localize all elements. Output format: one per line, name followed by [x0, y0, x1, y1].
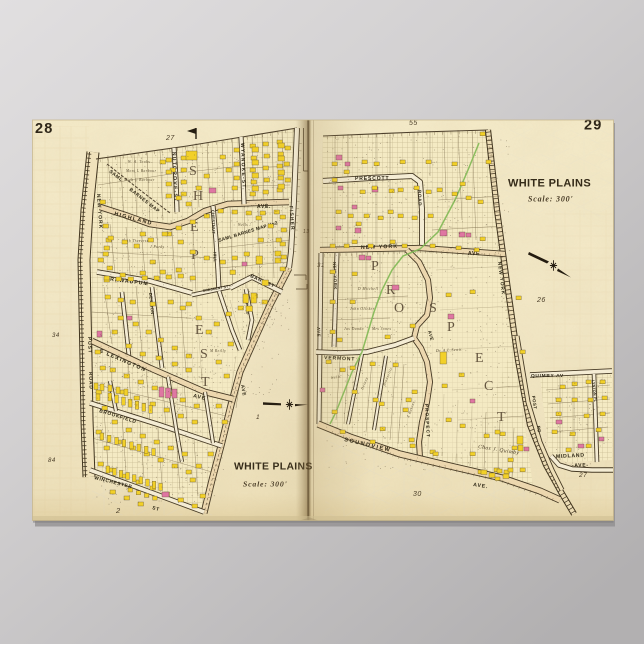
- svg-text:26: 26: [536, 297, 546, 304]
- svg-text:Scale: 300': Scale: 300': [528, 195, 573, 204]
- svg-text:E: E: [195, 323, 204, 338]
- svg-text:O: O: [394, 301, 405, 316]
- svg-text:P: P: [371, 259, 379, 274]
- svg-text:S: S: [200, 347, 208, 362]
- svg-text:QUIMBY AV: QUIMBY AV: [531, 373, 564, 379]
- svg-text:Mrs Jones: Mrs Jones: [371, 327, 391, 331]
- svg-text:55: 55: [409, 120, 418, 127]
- svg-text:27: 27: [165, 135, 175, 142]
- svg-text:CHESTNUT: CHESTNUT: [211, 210, 217, 235]
- svg-text:HILL: HILL: [213, 252, 218, 263]
- svg-text:H: H: [193, 189, 204, 204]
- svg-text:2: 2: [115, 506, 121, 515]
- svg-text:S: S: [189, 164, 197, 179]
- svg-text:ROAD: ROAD: [417, 190, 423, 206]
- svg-text:84: 84: [48, 458, 56, 464]
- svg-text:POST: POST: [86, 337, 93, 354]
- svg-text:Mont L Barbour: Mont L Barbour: [125, 169, 157, 173]
- svg-text:-AVE-: -AVE-: [572, 462, 589, 469]
- svg-text:ROAD: ROAD: [87, 372, 94, 390]
- svg-text:RD: RD: [536, 425, 542, 433]
- svg-text:30: 30: [413, 491, 422, 498]
- svg-text:WHITE PLAINS: WHITE PLAINS: [508, 178, 591, 190]
- svg-text:27: 27: [578, 472, 587, 479]
- svg-text:M Reilly: M Reilly: [209, 349, 226, 353]
- svg-text:Mich C Barbour: Mich C Barbour: [123, 178, 155, 182]
- svg-text:T: T: [201, 375, 210, 390]
- svg-text:34: 34: [52, 333, 60, 339]
- svg-text:J Purdy: J Purdy: [150, 245, 165, 249]
- svg-text:T: T: [497, 410, 506, 425]
- svg-text:S: S: [429, 301, 437, 316]
- svg-text:W. A. Tooks: W. A. Tooks: [128, 160, 150, 164]
- svg-text:28: 28: [35, 121, 54, 137]
- svg-text:E: E: [475, 351, 484, 366]
- svg-text:C: C: [484, 379, 494, 394]
- svg-text:P: P: [447, 320, 455, 335]
